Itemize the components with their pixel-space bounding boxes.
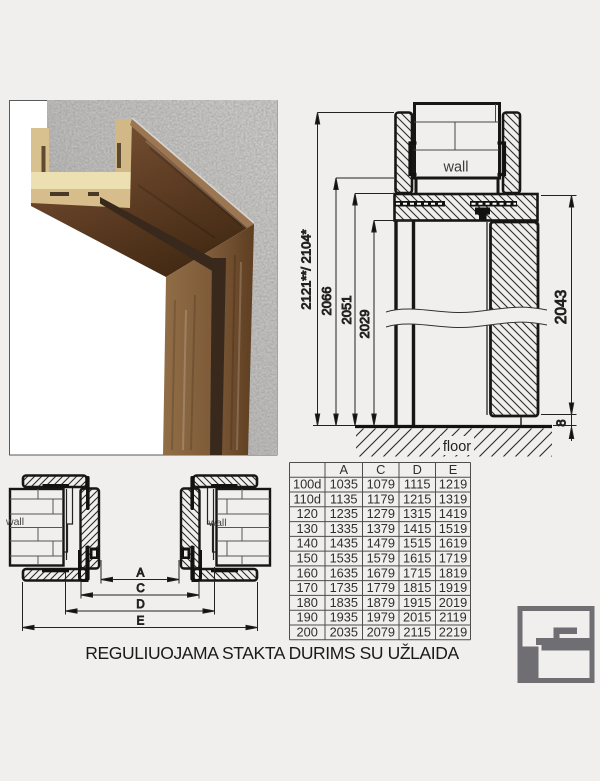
svg-text:190: 190 <box>297 610 318 625</box>
svg-text:1215: 1215 <box>403 491 431 506</box>
svg-text:2029: 2029 <box>357 310 372 339</box>
svg-text:1079: 1079 <box>367 477 395 492</box>
svg-text:1535: 1535 <box>330 551 358 566</box>
svg-text:1935: 1935 <box>330 610 358 625</box>
svg-text:E: E <box>449 462 458 477</box>
svg-text:140: 140 <box>297 536 318 551</box>
svg-text:E: E <box>137 616 145 628</box>
svg-text:floor: floor <box>443 439 471 455</box>
svg-text:120: 120 <box>297 506 318 521</box>
svg-text:1319: 1319 <box>439 491 467 506</box>
svg-text:1115: 1115 <box>404 477 431 492</box>
svg-text:1435: 1435 <box>330 536 358 551</box>
svg-text:REGULIUOJAMA STAKTA DURIMS SU: REGULIUOJAMA STAKTA DURIMS SU UŽLAIDA <box>85 643 459 663</box>
svg-text:2035: 2035 <box>330 624 358 639</box>
svg-text:1279: 1279 <box>367 506 395 521</box>
svg-text:1979: 1979 <box>367 610 395 625</box>
svg-text:2015: 2015 <box>403 610 431 625</box>
svg-text:1179: 1179 <box>367 491 395 506</box>
svg-text:2066: 2066 <box>319 287 334 316</box>
svg-text:1479: 1479 <box>367 536 395 551</box>
svg-text:wall: wall <box>5 516 24 528</box>
svg-text:C: C <box>376 462 385 477</box>
svg-text:2119: 2119 <box>439 610 467 625</box>
svg-text:1679: 1679 <box>367 565 395 580</box>
svg-text:200: 200 <box>297 624 318 639</box>
svg-text:1135: 1135 <box>330 491 358 506</box>
svg-text:1915: 1915 <box>403 595 431 610</box>
svg-text:1735: 1735 <box>330 580 358 595</box>
svg-text:1615: 1615 <box>403 551 431 566</box>
svg-text:D: D <box>413 462 422 477</box>
svg-text:2115: 2115 <box>403 624 431 639</box>
svg-text:wall: wall <box>443 160 469 176</box>
svg-text:2019: 2019 <box>439 595 467 610</box>
svg-text:C: C <box>136 583 144 595</box>
svg-text:1315: 1315 <box>403 506 431 521</box>
svg-text:1515: 1515 <box>403 536 431 551</box>
svg-text:2043: 2043 <box>553 290 570 324</box>
svg-text:1635: 1635 <box>330 565 358 580</box>
svg-text:1779: 1779 <box>367 580 395 595</box>
svg-text:2121**/ 2104*: 2121**/ 2104* <box>299 229 314 309</box>
svg-text:130: 130 <box>297 521 318 536</box>
svg-text:1219: 1219 <box>439 477 467 492</box>
svg-text:2051: 2051 <box>339 296 354 325</box>
svg-text:170: 170 <box>297 580 318 595</box>
svg-text:1819: 1819 <box>439 565 467 580</box>
svg-text:110d: 110d <box>293 491 321 506</box>
svg-text:1379: 1379 <box>367 521 395 536</box>
svg-text:2219: 2219 <box>439 624 467 639</box>
svg-text:1335: 1335 <box>330 521 358 536</box>
svg-text:2079: 2079 <box>367 624 395 639</box>
svg-text:1815: 1815 <box>403 580 431 595</box>
svg-text:1715: 1715 <box>403 565 431 580</box>
svg-text:8: 8 <box>554 419 569 426</box>
svg-text:1035: 1035 <box>330 477 358 492</box>
svg-text:A: A <box>137 568 145 580</box>
svg-text:1235: 1235 <box>330 506 358 521</box>
svg-text:D: D <box>136 599 144 611</box>
svg-text:1419: 1419 <box>439 506 467 521</box>
svg-text:1519: 1519 <box>439 521 467 536</box>
svg-text:160: 160 <box>297 565 318 580</box>
svg-text:1579: 1579 <box>367 551 395 566</box>
svg-text:wall: wall <box>208 517 227 529</box>
svg-text:1919: 1919 <box>439 580 467 595</box>
svg-text:100d: 100d <box>293 477 321 492</box>
svg-text:1835: 1835 <box>330 595 358 610</box>
svg-text:A: A <box>340 462 349 477</box>
svg-text:1415: 1415 <box>403 521 431 536</box>
svg-text:150: 150 <box>297 551 318 566</box>
svg-text:1879: 1879 <box>367 595 395 610</box>
svg-text:1719: 1719 <box>439 551 467 566</box>
svg-text:180: 180 <box>297 595 318 610</box>
svg-text:1619: 1619 <box>439 536 467 551</box>
